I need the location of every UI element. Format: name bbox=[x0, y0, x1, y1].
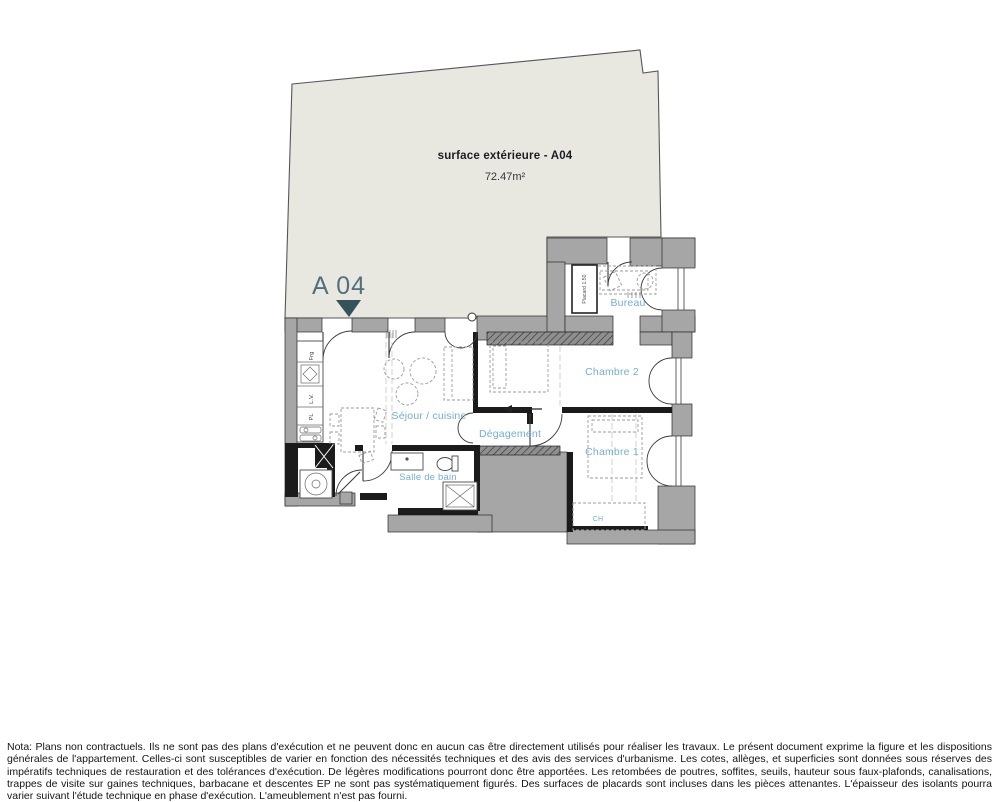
room-label-degagement: Dégagement bbox=[479, 428, 541, 440]
room-label-bureau: Bureau bbox=[610, 297, 645, 309]
cupboard-label: PL bbox=[309, 413, 315, 421]
floor-plan-canvas: surface extérieure - A04 72.47m² A 04 bbox=[0, 0, 998, 800]
column-marker bbox=[468, 313, 476, 321]
unit-label: A 04 bbox=[312, 272, 366, 300]
legal-note: Nota: Plans non contractuels. Ils ne son… bbox=[7, 741, 992, 802]
room-label-sejour: Séjour / cuisine bbox=[392, 410, 467, 422]
fridge-label: Frg bbox=[309, 352, 315, 361]
room-label-ch: CH bbox=[593, 516, 604, 523]
room-label-chambre2: Chambre 2 bbox=[585, 366, 639, 378]
dishwasher-label: L.V. bbox=[309, 394, 315, 404]
utility-cubby bbox=[300, 445, 333, 498]
placard-label: Placard 1.50 bbox=[582, 274, 588, 303]
terrace-area-value: 72.47m² bbox=[485, 171, 526, 183]
room-label-salle-de-bain: Salle de bain bbox=[399, 472, 457, 483]
room-label-chambre1: Chambre 1 bbox=[585, 446, 639, 458]
terrace-label: surface extérieure - A04 bbox=[438, 150, 573, 162]
kitchen-counter: Frg L.V. PL bbox=[297, 341, 323, 442]
